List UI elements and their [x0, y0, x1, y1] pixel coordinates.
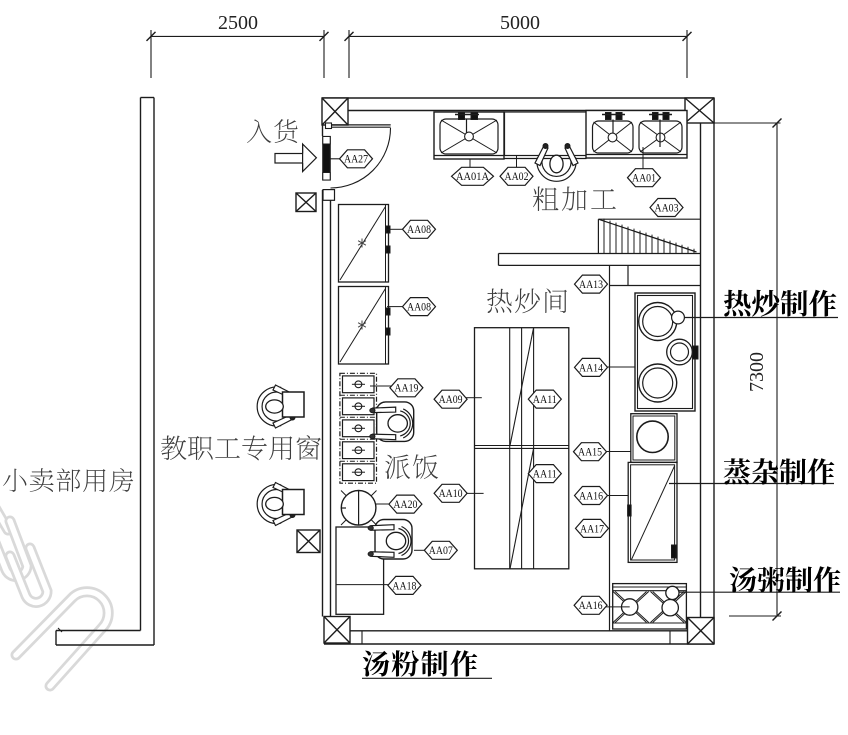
svg-text:AA01A: AA01A	[456, 171, 490, 183]
svg-text:AA08: AA08	[407, 302, 431, 314]
svg-text:2500: 2500	[218, 12, 258, 34]
svg-text:AA27: AA27	[344, 154, 368, 166]
svg-text:AA14: AA14	[579, 362, 603, 374]
svg-text:5000: 5000	[500, 12, 540, 34]
svg-text:AA20: AA20	[393, 499, 417, 511]
svg-text:AA16: AA16	[579, 600, 603, 612]
svg-text:AA11: AA11	[533, 394, 557, 406]
svg-text:AA02: AA02	[505, 171, 529, 183]
svg-text:AA08: AA08	[407, 224, 431, 236]
svg-text:AA18: AA18	[392, 580, 416, 592]
svg-text:AA11: AA11	[533, 469, 557, 481]
svg-text:AA07: AA07	[429, 545, 453, 557]
svg-text:AA09: AA09	[439, 394, 463, 406]
svg-text:AA17: AA17	[580, 523, 604, 535]
svg-text:AA03: AA03	[655, 202, 679, 214]
svg-text:AA19: AA19	[394, 383, 418, 395]
svg-text:7300: 7300	[746, 352, 768, 392]
svg-text:AA15: AA15	[578, 447, 602, 459]
svg-text:AA01: AA01	[632, 173, 656, 185]
svg-text:AA10: AA10	[439, 488, 463, 500]
svg-text:AA16: AA16	[579, 490, 603, 502]
svg-text:AA13: AA13	[579, 279, 603, 291]
